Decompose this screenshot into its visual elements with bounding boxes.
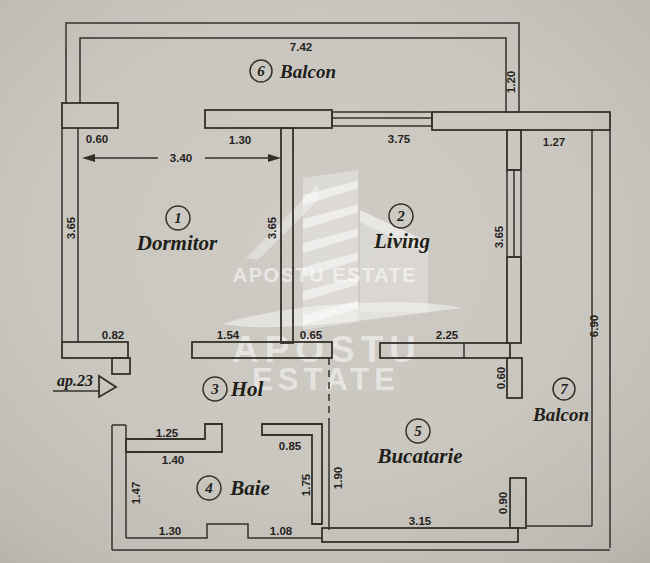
room-balcon6-label: 6 Balcon — [250, 60, 336, 82]
dim-buc-left-h: 1.90 — [332, 467, 344, 489]
watermark-small-text: APOSTU ESTATE — [233, 264, 417, 286]
balcony7-railing — [526, 130, 610, 548]
room-name-baie: Baie — [229, 476, 270, 500]
entrance-label: ap.23 — [57, 372, 93, 390]
dim-baie-top-outer: 1.25 — [156, 427, 179, 439]
dim-arrow-right-icon — [268, 154, 281, 162]
wall-top-right — [432, 112, 610, 130]
room-number-bucatarie: 5 — [414, 423, 422, 439]
room-dormitor-label: 1 Dormitor — [136, 206, 218, 255]
dim-balcon6-depth: 1.20 — [505, 71, 517, 93]
room-name-bucatarie: Bucatarie — [376, 444, 462, 468]
room-baie-label: 4 Baie — [197, 476, 270, 500]
room-number-dormitor: 1 — [174, 210, 182, 226]
dim-dorm-right-h: 3.65 — [266, 216, 278, 239]
dim-baie-bottom-left: 1.30 — [159, 525, 181, 537]
dim-buc-bottom: 3.15 — [409, 515, 432, 527]
dim-dorm-left-h: 3.65 — [65, 216, 77, 239]
living-right-window — [507, 170, 521, 257]
wall-dormitor-bottom-left — [62, 342, 128, 358]
dim-buc-balcony-top: 0.60 — [495, 367, 507, 389]
dim-buc-balcony-bottom: 0.90 — [497, 492, 509, 514]
entrance-arrow-icon — [99, 376, 116, 397]
dim-balcon6-length: 7.42 — [290, 41, 312, 53]
dim-balcon7-length: 6.90 — [588, 315, 600, 337]
room-number-baie: 4 — [204, 480, 213, 496]
dim-hol-top-right: 0.65 — [300, 329, 323, 341]
dim-living-window-h: 3.65 — [493, 225, 505, 248]
dim-dorm-step: 0.82 — [102, 329, 124, 341]
room-name-balcon7: Balcon — [532, 404, 589, 425]
dim-dorm-top-right: 1.30 — [229, 134, 251, 146]
room-number-hol: 3 — [210, 381, 219, 397]
room-name-dormitor: Dormitor — [136, 231, 218, 255]
wall-bucatarie-bottom — [322, 528, 518, 542]
dim-living-window: 3.75 — [388, 133, 411, 145]
dim-baie-top-inner: 1.40 — [162, 454, 184, 466]
dim-baie-right-top: 0.85 — [279, 440, 302, 452]
wall-baie-right — [262, 424, 322, 524]
wall-baie-left — [112, 425, 126, 550]
top-walls — [62, 103, 610, 130]
dim-baie-bottom-right: 1.08 — [270, 525, 293, 537]
dim-dorm-width: 3.40 — [170, 152, 192, 164]
room-number-balcon6: 6 — [257, 63, 265, 79]
dim-balcon7-top: 1.27 — [543, 136, 565, 148]
living-top-window — [332, 112, 432, 126]
wall-buc-balcony-top — [507, 358, 522, 398]
room-name-hol: Hol — [230, 377, 264, 401]
room-hol-label: 3 Hol — [203, 377, 263, 401]
dim-baie-left-h: 1.47 — [130, 482, 142, 504]
room-bucatarie-label: 5 Bucatarie — [376, 419, 462, 468]
room-name-balcon6: Balcon — [279, 61, 336, 82]
dim-baie-right-h: 1.75 — [300, 473, 312, 496]
dim-hol-top-left: 1.54 — [217, 329, 240, 341]
dim-dorm-top-left: 0.60 — [86, 133, 108, 145]
entrance-door-step — [112, 358, 130, 374]
room-number-balcon7: 7 — [560, 381, 568, 397]
wall-dormitor-top-left — [62, 103, 118, 128]
wall-buc-balcony-bottom — [510, 478, 526, 528]
wall-dormitor-top-right — [205, 110, 332, 128]
room-balcon7-label: 7 Balcon — [532, 378, 589, 425]
wall-baie-bottom — [126, 524, 322, 538]
room-living-label: 2 Living — [373, 204, 430, 253]
watermark-big-word2: ESTATE — [252, 362, 400, 397]
dim-living-bottom: 2.25 — [436, 329, 459, 341]
dim-arrow-left-icon — [82, 154, 95, 162]
room-number-living: 2 — [396, 208, 405, 224]
floor-plan-photo: APOSTU ESTATE APOSTU ESTATE — [0, 0, 650, 563]
wall-living-right — [507, 130, 521, 343]
floor-plan-drawing: APOSTU ESTATE APOSTU ESTATE — [0, 0, 650, 563]
room-name-living: Living — [373, 229, 430, 253]
entrance-mark: ap.23 — [53, 372, 116, 397]
